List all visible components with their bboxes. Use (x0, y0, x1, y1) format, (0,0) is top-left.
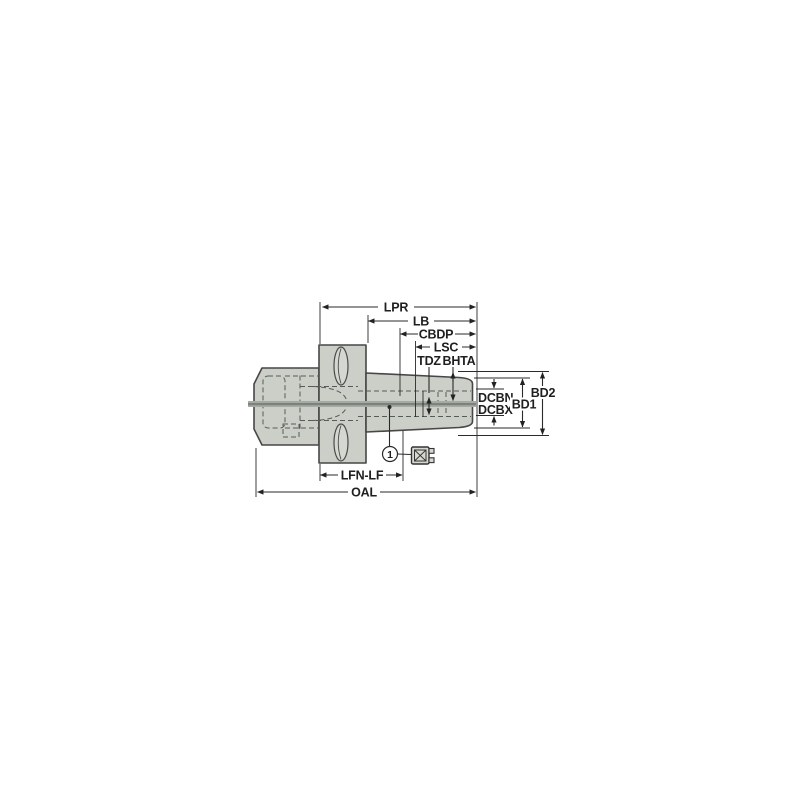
flange-slot-bottom (334, 424, 348, 461)
balloon-number: 1 (387, 449, 393, 461)
centerline (248, 401, 476, 407)
label-lb: LB (413, 315, 429, 329)
label-bd2: BD2 (531, 386, 556, 400)
label-bhta: BHTA (443, 354, 476, 368)
technical-drawing-page: LPR LB CBDP LSC TDZ BHTA DCBN- DCBX BD1 (0, 0, 800, 800)
label-lpr: LPR (384, 301, 409, 315)
label-oal: OAL (351, 486, 377, 500)
label-tdz: TDZ (417, 354, 441, 368)
flange-slot-top (334, 347, 348, 385)
label-cbdp: CBDP (419, 328, 454, 342)
label-dcbx: DCBX (478, 403, 513, 417)
label-lsc: LSC (434, 341, 459, 355)
label-lfn-lf: LFN-LF (341, 469, 384, 483)
tool-holder-dimension-diagram: LPR LB CBDP LSC TDZ BHTA DCBN- DCBX BD1 (0, 0, 800, 800)
leader-dot (388, 405, 392, 409)
